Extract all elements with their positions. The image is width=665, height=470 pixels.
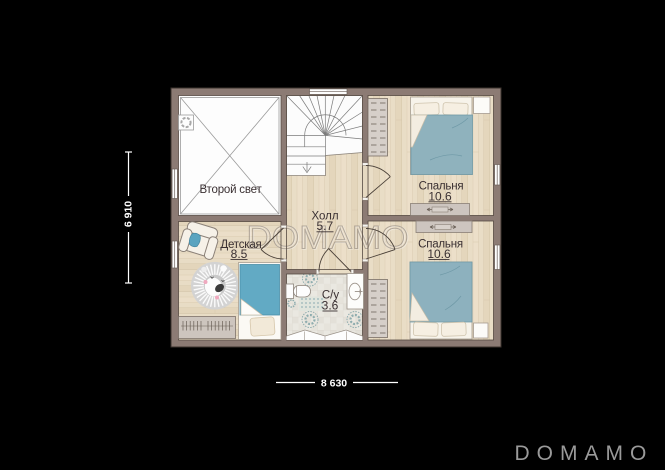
svg-text:10.6: 10.6 xyxy=(428,189,452,203)
svg-text:3.6: 3.6 xyxy=(322,298,339,312)
svg-text:Второй свет: Второй свет xyxy=(199,184,262,196)
svg-text:6 910: 6 910 xyxy=(122,201,134,227)
svg-text:10.6: 10.6 xyxy=(427,247,451,261)
svg-text:8 630: 8 630 xyxy=(321,378,347,390)
svg-text:5.7: 5.7 xyxy=(316,219,333,233)
svg-text:DOMAMO: DOMAMO xyxy=(515,442,654,465)
svg-text:8.5: 8.5 xyxy=(231,247,248,261)
